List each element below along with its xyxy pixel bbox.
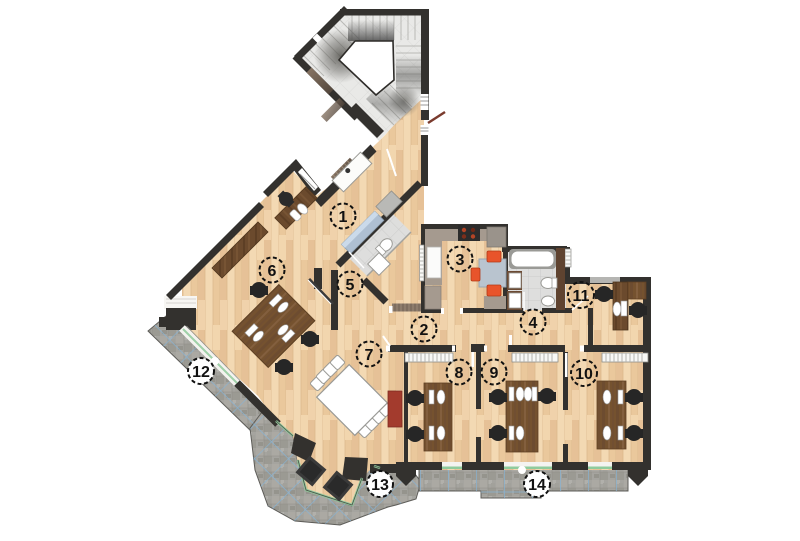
svg-text:9: 9 [490, 365, 499, 382]
svg-text:12: 12 [192, 364, 210, 381]
svg-text:5: 5 [346, 277, 355, 294]
svg-text:6: 6 [268, 263, 277, 280]
svg-text:10: 10 [575, 366, 593, 383]
svg-text:8: 8 [455, 365, 464, 382]
svg-text:2: 2 [420, 322, 429, 339]
svg-text:1: 1 [339, 209, 348, 226]
svg-text:4: 4 [529, 315, 538, 332]
svg-text:3: 3 [456, 252, 465, 269]
svg-text:11: 11 [573, 288, 590, 305]
svg-text:14: 14 [528, 477, 546, 494]
svg-text:13: 13 [371, 477, 389, 494]
svg-text:7: 7 [365, 347, 374, 364]
